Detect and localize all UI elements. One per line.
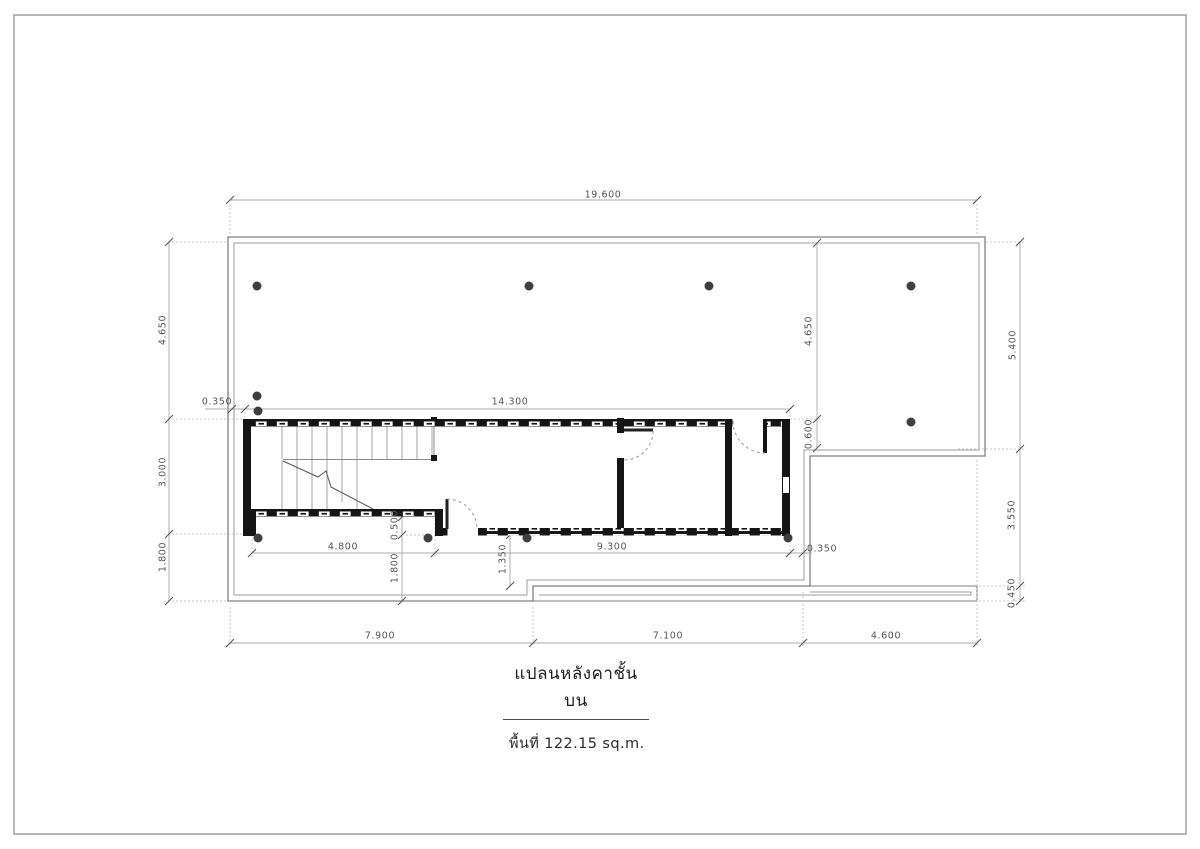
door-leaf-top — [763, 419, 767, 453]
bottom-wall — [443, 528, 790, 536]
plan-area-label: พื้นที่ 122.15 sq.m. — [503, 732, 649, 755]
staircase — [282, 417, 437, 509]
partition-a — [617, 458, 624, 528]
top-wall — [243, 419, 790, 427]
plan-title: แปลนหลังคาชั้นบน — [503, 660, 649, 720]
door-swing-arc — [624, 431, 653, 460]
stair-bottom-wall — [251, 509, 443, 517]
partition-b — [725, 419, 732, 536]
stair-direction-line — [283, 461, 373, 509]
building-walls — [243, 418, 790, 537]
door-swing-arc — [447, 499, 477, 529]
title-block: แปลนหลังคาชั้นบน พื้นที่ 122.15 sq.m. — [503, 660, 649, 755]
doors — [447, 421, 765, 529]
drawing-sheet: 19.6000.35014.3004.8009.3000.3507.9007.1… — [0, 0, 1200, 849]
column-dots — [253, 282, 916, 543]
